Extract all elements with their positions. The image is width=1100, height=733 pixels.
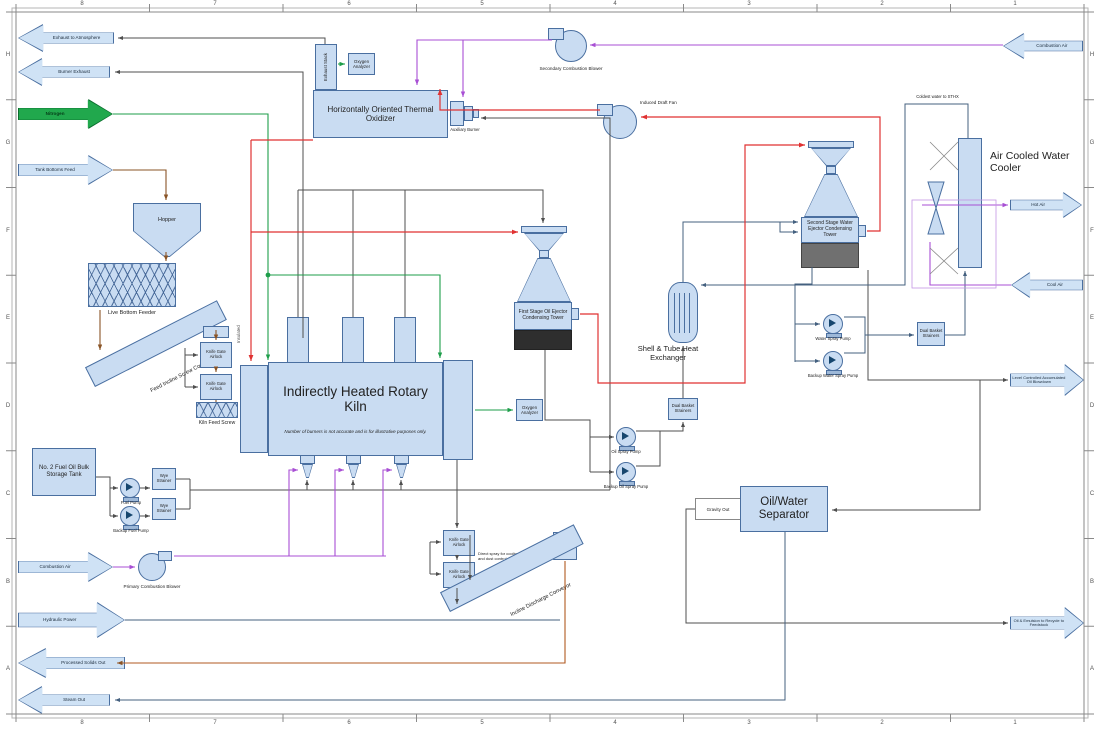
grid-col: 2 <box>872 720 892 726</box>
grid-col: 1 <box>1005 1 1025 7</box>
grid-row: C <box>1082 491 1100 497</box>
kiln-burner-1-nozzle <box>302 464 313 478</box>
flag-cool-air: Cool Air <box>1011 272 1083 298</box>
air-cooled-water-cooler-column <box>958 138 982 268</box>
exhaust-stack: Exhaust Stack <box>315 44 337 90</box>
water-spray-pump <box>823 314 843 334</box>
flag-steam-out: Steam Out <box>18 686 110 714</box>
first-stage-tower: First Stage Oil Ejector Condensing Tower <box>514 302 572 330</box>
flag-oil-blowdown: Level Controlled Accumulated Oil Blowdow… <box>1010 364 1084 396</box>
grid-col: 7 <box>205 1 225 7</box>
primary-combustion-blower-label: Primary Combustion Blower <box>120 584 184 589</box>
grid-col: 3 <box>739 1 759 7</box>
backup-oil-spray-pump-label: Backup Oil Spray Pump <box>600 485 652 490</box>
auxiliary-burner-nozzle <box>464 106 473 121</box>
flag-tank-bottoms-feed: Tank Bottoms Feed <box>18 155 113 185</box>
flag-exhaust-to-atmosphere: Exhaust to Atmosphere <box>18 24 114 52</box>
kiln-burner-2 <box>346 455 361 464</box>
pipe-lines <box>0 0 1100 733</box>
kiln-burner-3-nozzle <box>396 464 407 478</box>
first-stage-tower-oil-sump <box>514 330 572 350</box>
grid-col: 8 <box>72 720 92 726</box>
air-cooled-water-cooler-label: Air Cooled Water Cooler <box>990 150 1090 174</box>
dual-basket-strainers-1: Dual Basket Strainers <box>668 398 698 420</box>
kiln-feed-screw <box>196 402 238 418</box>
kiln-burner-2-nozzle <box>348 464 359 478</box>
first-stage-tower-throat <box>539 250 549 258</box>
grid-col: 6 <box>339 1 359 7</box>
oil-spray-pump <box>616 427 636 447</box>
grid-col: 7 <box>205 720 225 726</box>
secondary-combustion-blower-tail <box>548 28 564 40</box>
thermal-oxidizer: Horizontally Oriented Thermal Oxidizer <box>313 90 448 138</box>
grid-row: E <box>0 315 18 321</box>
grid-row: A <box>1082 666 1100 672</box>
secondary-combustion-blower-label: Secondary Combustion Blower <box>533 66 609 71</box>
knife-gate-airlock-2: Knife Gate Airlock <box>200 374 232 400</box>
second-stage-tower-cone <box>804 174 858 217</box>
second-stage-tower-cap <box>808 141 854 148</box>
wye-strainer-1: Wye Strainer <box>152 468 176 490</box>
shell-tube-heat-exchanger <box>668 282 698 343</box>
fuel-pump <box>120 478 140 498</box>
knife-gate-airlock-1: Knife Gate Airlock <box>200 342 232 368</box>
flag-hydraulic-power: Hydraulic Power <box>18 602 125 638</box>
grid-row: F <box>1082 228 1100 234</box>
gravity-out-label: Gravity Out <box>695 498 741 520</box>
grid-col: 4 <box>605 720 625 726</box>
kiln-burner-1 <box>300 455 315 464</box>
auxiliary-burner-tip <box>473 109 479 118</box>
oil-water-separator: Oil/Water Separator <box>740 486 828 532</box>
grid-row: G <box>0 140 18 146</box>
backup-fuel-pump <box>120 506 140 526</box>
flag-combustion-air-right: Combustion Air <box>1003 33 1083 59</box>
grid-row: D <box>1082 403 1100 409</box>
kiln-burner-3 <box>394 455 409 464</box>
grid-col: 2 <box>872 1 892 7</box>
process-flow-diagram: 8 7 6 5 4 3 2 1 8 7 6 5 4 3 2 1 H G F E … <box>0 0 1100 733</box>
second-stage-tower: Second Stage Water Ejector Condensing To… <box>801 217 859 243</box>
kiln-note: Number of burners is not accurate and is… <box>276 429 436 434</box>
grid-row: B <box>1082 579 1100 585</box>
induced-draft-fan-label: Induced Draft Fan <box>640 100 684 105</box>
auxiliary-burner-label: Auxiliary Burner <box>444 128 486 133</box>
grid-col: 4 <box>605 1 625 7</box>
backup-water-spray-pump-label: Backup Water Spray Pump <box>804 374 862 379</box>
rotary-kiln-label: Indirectly Heated Rotary Kiln <box>276 384 436 415</box>
hopper: Hopper <box>133 203 201 257</box>
grid-row: E <box>1082 315 1100 321</box>
flag-oil-emulsion-recycle: Oil & Emulsion to Recycle to Feedstock <box>1010 607 1084 639</box>
kiln-right-trunnion <box>443 360 473 460</box>
auxiliary-burner-body <box>450 101 464 126</box>
kiln-riser-2 <box>342 317 364 363</box>
grid-col: 5 <box>472 720 492 726</box>
water-spray-pump-label: Water Spray Pump <box>808 337 858 342</box>
grid-row: F <box>0 228 18 234</box>
grid-col: 6 <box>339 720 359 726</box>
second-stage-tower-throat <box>826 166 836 174</box>
flag-nitrogen: Nitrogen <box>18 99 113 129</box>
grid-col: 1 <box>1005 720 1025 726</box>
grid-row: G <box>1082 140 1100 146</box>
backup-oil-spray-pump <box>616 462 636 482</box>
oil-spray-pump-label: Oil Spray Pump <box>604 450 648 455</box>
kiln-left-trunnion <box>240 365 268 453</box>
flag-combustion-air-left: Combustion Air <box>18 552 113 582</box>
first-stage-tower-cap <box>521 226 567 233</box>
flag-hot-air: Hot Air <box>1010 192 1082 218</box>
second-stage-tower-nozzle <box>858 225 866 237</box>
knife-gate-airlock-3: Knife Gate Airlock <box>443 530 475 556</box>
backup-water-spray-pump <box>823 351 843 371</box>
first-stage-tower-cone <box>517 258 571 302</box>
primary-combustion-blower-tail <box>158 551 172 561</box>
flag-burner-exhaust: Burner Exhaust <box>18 58 110 86</box>
kiln-feed-screw-label: Kiln Feed Screw <box>192 421 242 427</box>
insulated-note: Insulated <box>236 312 241 356</box>
first-stage-tower-nozzle <box>571 308 579 320</box>
coldest-water-note: Coldest water to STHX <box>900 95 975 100</box>
kiln-riser-1 <box>287 317 309 363</box>
second-stage-tower-funnel <box>811 148 851 166</box>
wye-strainer-2: Wye Strainer <box>152 498 176 520</box>
grid-row: H <box>1082 52 1100 58</box>
dual-basket-strainers-2: Dual Basket Strainers <box>917 322 945 346</box>
grid-row: H <box>0 52 18 58</box>
backup-fuel-pump-label: Backup Fuel Pump <box>108 529 154 534</box>
kiln-riser-3 <box>394 317 416 363</box>
fuel-tank: No. 2 Fuel Oil Bulk Storage Tank <box>32 448 96 496</box>
live-bottom-feeder <box>88 263 176 307</box>
shell-tube-heat-exchanger-label: Shell & Tube Heat Exchanger <box>622 345 714 362</box>
induced-draft-fan-tail <box>597 104 613 116</box>
oxygen-analyzer-2: Oxygen Analyzer <box>516 399 543 421</box>
feed-conveyor-discharge-housing <box>203 326 229 338</box>
rotary-kiln: Indirectly Heated Rotary Kiln Number of … <box>268 362 443 456</box>
grid-row: C <box>0 491 18 497</box>
live-bottom-feeder-label: Live Bottom Feeder <box>88 310 176 316</box>
grid-col: 8 <box>72 1 92 7</box>
grid-col: 3 <box>739 720 759 726</box>
grid-row: A <box>0 666 18 672</box>
grid-col: 5 <box>472 1 492 7</box>
first-stage-tower-funnel <box>524 233 564 251</box>
flag-processed-solids-out: Processed Solids Out <box>18 648 125 678</box>
second-stage-tower-water-sump <box>801 243 859 268</box>
grid-row: B <box>0 579 18 585</box>
oxygen-analyzer-1: Oxygen Analyzer <box>348 53 375 75</box>
grid-row: D <box>0 403 18 409</box>
